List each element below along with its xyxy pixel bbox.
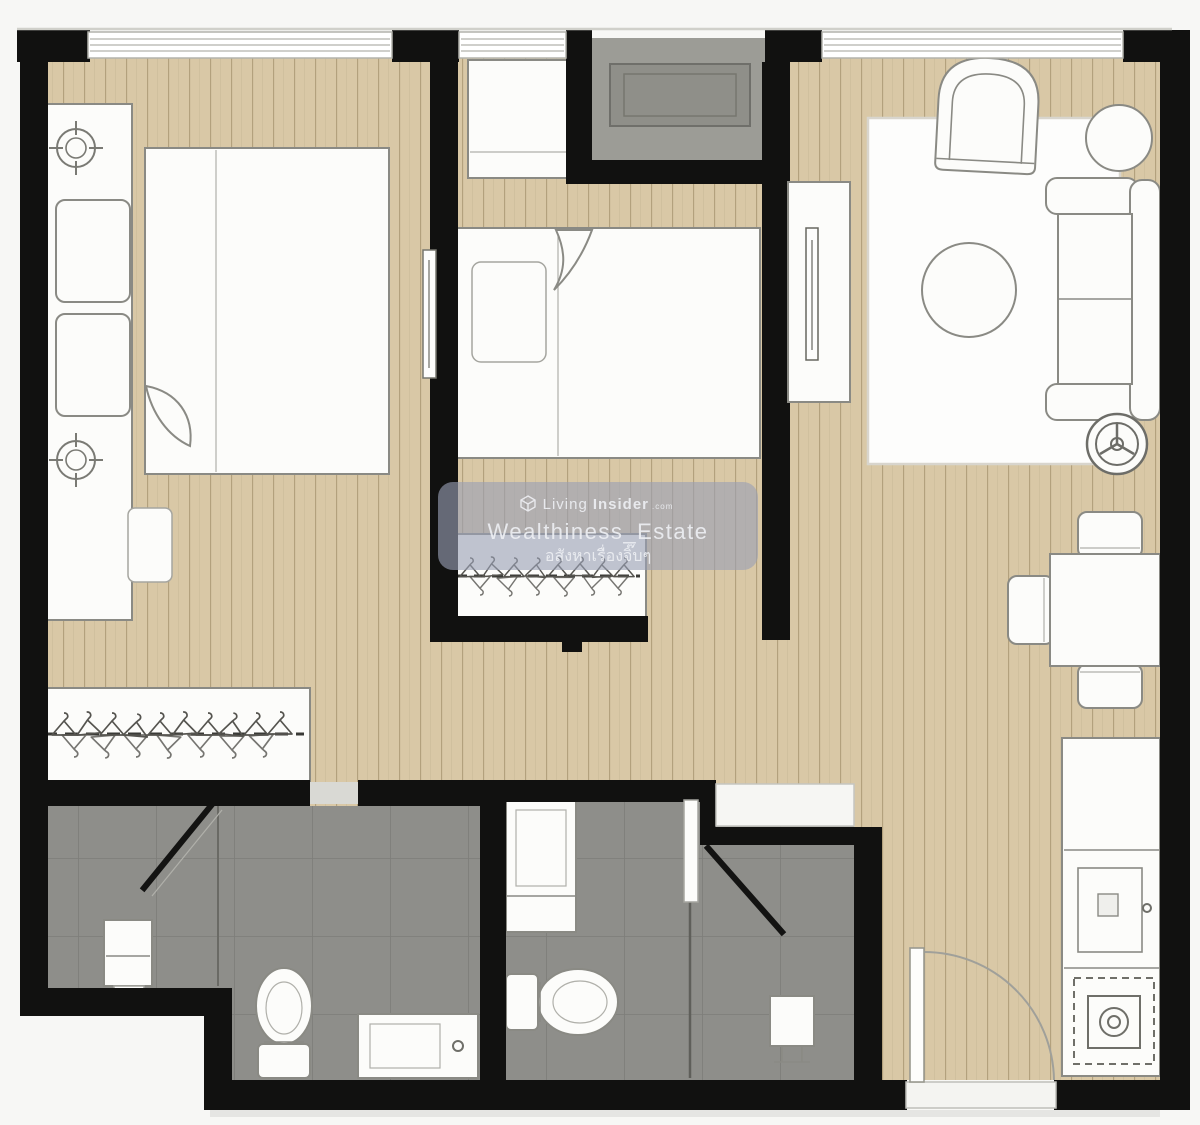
window bbox=[88, 32, 392, 58]
round-coffee-table bbox=[922, 243, 1016, 337]
window bbox=[459, 32, 566, 58]
tv-console bbox=[788, 182, 850, 402]
sofa bbox=[1046, 178, 1160, 420]
dining-chair bbox=[1008, 576, 1054, 644]
living-room bbox=[868, 55, 1160, 474]
exterior-area bbox=[0, 1016, 204, 1125]
round-side-table bbox=[1086, 105, 1152, 171]
pillow bbox=[56, 200, 130, 302]
vanity-sink bbox=[358, 1014, 478, 1078]
bedroom-1-tv bbox=[423, 250, 436, 378]
floor-plan-drawing: LivingInsider.com Wealthiness_Estate อสั… bbox=[0, 0, 1200, 1125]
vanity-sink bbox=[506, 798, 576, 932]
bathroom-2-door-leaf bbox=[684, 800, 698, 902]
armchair bbox=[935, 55, 1041, 174]
watermark: LivingInsider.com Wealthiness_Estate อสั… bbox=[438, 482, 758, 570]
floor-plan: LivingInsider.com Wealthiness_Estate อสั… bbox=[0, 0, 1200, 1125]
window-desk bbox=[468, 60, 580, 178]
toilet bbox=[256, 968, 312, 1078]
window bbox=[822, 32, 1123, 58]
entrance-door-leaf bbox=[910, 948, 924, 1082]
ac-ledge bbox=[592, 38, 765, 162]
watermark-account: Wealthiness_Estate bbox=[487, 519, 708, 544]
electric-fan bbox=[1087, 414, 1147, 474]
dining-chair bbox=[1078, 512, 1142, 558]
pillow bbox=[472, 262, 546, 362]
dining-chair bbox=[1078, 664, 1142, 708]
pillow bbox=[56, 314, 130, 416]
toilet bbox=[506, 969, 618, 1035]
bathroom-1-threshold bbox=[310, 782, 358, 804]
wall-shadow bbox=[210, 1110, 1160, 1117]
desk-chair bbox=[128, 508, 172, 582]
sofa-armrest bbox=[1046, 178, 1138, 214]
entrance-threshold bbox=[906, 1082, 1056, 1108]
bathroom-2-threshold bbox=[716, 784, 854, 826]
watermark-tagline: อสังหาเรื่องจิ๊บๆ bbox=[545, 544, 651, 565]
dining-table bbox=[1050, 554, 1160, 666]
kitchen bbox=[1062, 738, 1160, 1076]
shower-stool bbox=[104, 920, 152, 994]
sofa-back bbox=[1130, 180, 1160, 420]
